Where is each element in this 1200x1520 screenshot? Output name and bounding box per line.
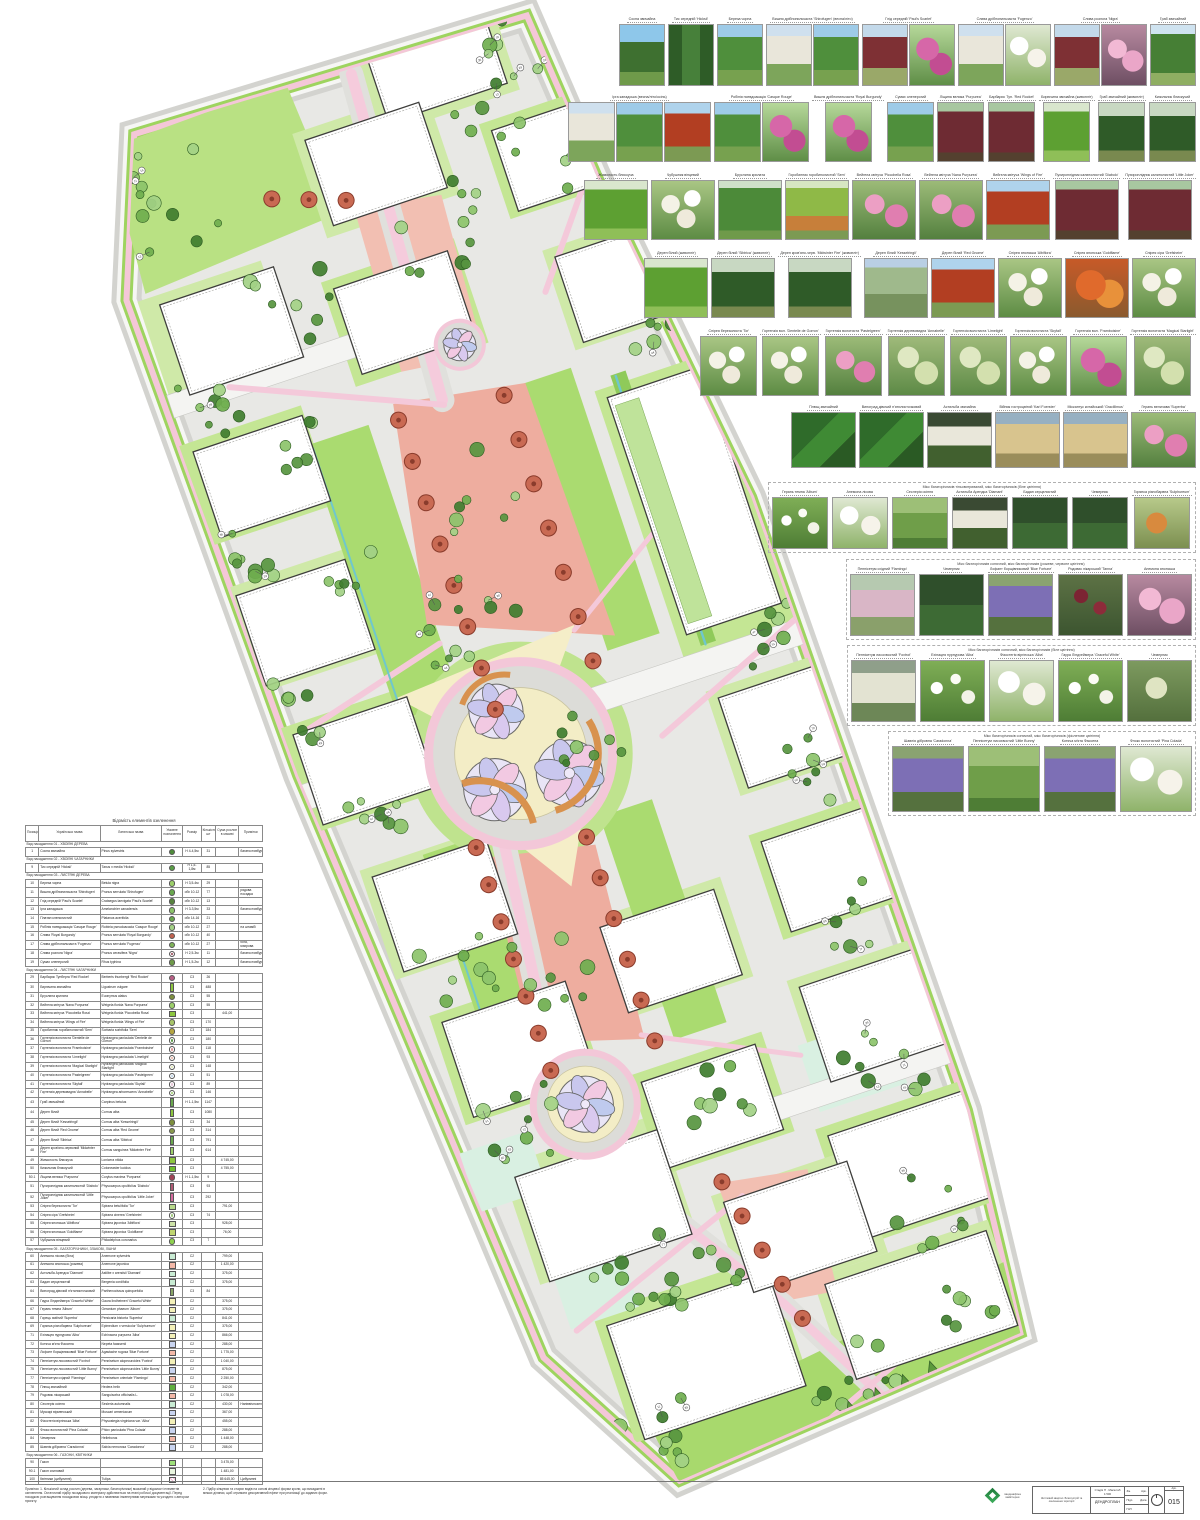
plant-photo-group: Фізостегія віргінська 'Alba' [989,654,1054,722]
plant-photo-group: Граб звичайний [1150,18,1196,86]
section-row: Вид насадження 04 - ЛИСТЯНІ ЧАГАРНИКИ [26,967,263,974]
plant-photo [1127,660,1192,722]
plant-photo-label: Дерен білий 'Sibirica' (живопліт) [715,252,772,257]
plant-photo [813,24,859,86]
plant-photo-label: Пеннісетум лисохвостий 'Little Bunny' [971,740,1037,745]
plant-photo [1134,336,1191,396]
plant-photo-group: Гортензія волотиста 'Magical Starlight' [1130,330,1196,396]
plant-symbol [169,1174,176,1181]
plant-photo-label: Фізостегія віргінська 'Alba' [998,654,1045,659]
plant-photo-group: Герань темна 'Album' [772,491,828,549]
plant-photo-label: Вейгела квітуча 'Piccobella Rosa' [855,174,913,179]
plant-photo-label: Гортензія волотиста 'Pastelgreen' [824,330,883,335]
plant-symbol [169,1393,176,1400]
photo-legend-row: Спірея березолиста 'Tor'Гортензія вол. '… [700,330,1196,396]
plant-photo-group: Дерен кров'яно-черв. 'Midwinter Fire' (ж… [778,252,861,318]
perennial-mix-section: Мікс багаторічників сонячний, мікс багат… [888,731,1196,816]
plant-row: 68Горець зміїний 'Superba'Persicaria bis… [26,1314,263,1323]
photo-legend-row: Мікс багаторічників сонячний, мікс багат… [846,559,1196,640]
plant-row: 69Горянка різнобарвна 'Sulphureum'Epimed… [26,1323,263,1332]
plant-row: 1Сосна звичайнаPinus sylvestrisН 4-4,5м3… [26,848,263,857]
plant-row: 90Газон3 475,00 [26,1459,263,1468]
plant-symbol [169,1271,176,1278]
plant-photo-label: Слива розлога 'Nigra' [1081,18,1120,23]
plant-row: 75Пеннісетум лисохвостий 'Little Bunny'P… [26,1366,263,1375]
plant-photo-label: Анемона японська [1142,568,1177,573]
plant-photo [950,336,1007,396]
plant-photo-group: Горянка різнобарвна 'Sulphureum' [1132,491,1192,549]
plant-photo [1120,746,1192,812]
plant-row: 56Спірея японська 'Goldflame'Spiraea jap… [26,1228,263,1237]
plant-symbol [169,933,176,940]
section-row: Вид насадження 05 - БАГАТОРІЧНИКИ, ЗЛАКО… [26,1246,263,1253]
plant-photo [931,258,995,318]
plant-symbol [169,1221,176,1228]
plant-photo-label: Виноград дівочий п'ятилисточковий [860,406,923,411]
plant-photo [852,180,916,240]
plant-schedule-table: ПозиціяУкраїнська назваЛатинська назваУм… [25,825,263,1485]
plant-photo [664,102,711,162]
plant-symbol [169,1444,176,1451]
plant-photo-group: Чубушник вінцевий [651,174,715,240]
plant-photo-group: Гортензія волотиста 'Pastelgreen' [824,330,883,396]
plant-photo-label: Вейгела квітуча 'Nana Purpurea' [922,174,979,179]
plant-photo-label: Ірга канадська (весна/літо/осінь) [610,96,668,101]
plant-photo-group: Спірея японська 'Albiflora' [998,252,1062,318]
plant-photo [1010,336,1067,396]
plant-photo [958,24,1004,86]
plant-row: 30Бирючина звичайнаLigustrum vulgareC348… [26,982,263,992]
plant-row: 15Робінія псевдоакація 'Casque Rouge'Rob… [26,923,263,932]
plant-photo [762,336,819,396]
plant-row: 11Вишня дрібнопильчаста 'Shirofugen'Prun… [26,888,263,897]
plant-row: 79Родовик лікарськийSanguisorba officina… [26,1392,263,1401]
plant-photo-label: Війник гостроцвітий 'Karl Foerster' [997,406,1057,411]
plant-row: 84ЧемерникHelleborusC21 448,00 [26,1435,263,1444]
plant-symbol [169,1262,176,1269]
plant-symbol [169,1333,176,1340]
plant-photo [968,746,1040,812]
plant-schedule-title: Відомість елементів озеленення [25,818,263,823]
plant-row: 14Платан кленолистийPlatanus acerifoliaо… [26,915,263,924]
plant-photo-group: Гаура Ліндхеймера 'Graceful White' [1058,654,1123,722]
plant-symbol [169,1238,176,1245]
plant-photo-label: Вишня дрібнопильчаста 'Shirofugen' (весн… [770,18,854,23]
plant-photo-group: Пухироплідник калинолистий 'Diabolo' [1053,174,1120,240]
plant-photo [986,180,1050,240]
plant-photo [1098,102,1145,162]
plant-row: 77Пеннісетум східний 'Flamingo'Pennisetu… [26,1375,263,1384]
drawing-notes: Примітки: 1. Кількісний склад рослин (де… [25,1487,355,1503]
plant-photo-group: Гортензія деревовидна 'Annabelle' [886,330,947,396]
section-row: Вид насадження 02 - ХВОЙНІ ЧАГАРНИКИ [26,856,263,863]
plant-row: 74Пеннісетум лисохвостий 'Foxtrot'Pennis… [26,1357,263,1366]
plant-symbol [169,1229,176,1236]
plant-row: 10Береза чорнаBetula nigraН 3,5-4м29 [26,879,263,888]
plant-symbol [169,1350,176,1357]
plant-photo [1063,412,1128,468]
plant-photo [788,258,852,318]
plant-photo [1043,102,1090,162]
plant-photo [851,660,916,722]
photo-legend-row: Ірга канадська (весна/літо/осінь)Робінія… [568,96,1196,162]
perennial-mix-section: Мікс багаторічників сонячний, мікс багат… [847,645,1196,726]
plant-photo-group: Слива дрібнопильчаста 'Fugenzo' [958,18,1051,86]
plant-photo-group: Дерен білий 'Kesselringii' [864,252,928,318]
plant-symbol [169,924,176,931]
plant-photo-group: Глід середній 'Paul's Scarlet' [862,18,955,86]
plant-photo-group: Вейгела квітуча 'Nana Purpurea' [919,174,983,240]
plant-symbol [169,1019,176,1026]
plant-photo [1058,660,1123,722]
plant-photo-group: Плющ звичайний [791,406,856,468]
photo-legend-row: Дерен білий (живопліт)Дерен білий 'Sibir… [644,252,1196,318]
plant-photo [832,497,888,549]
plant-photo-label: Граб звичайний (живопліт) [1098,96,1146,101]
plant-symbol [169,1046,176,1053]
plant-photo [988,102,1035,162]
plant-photo-group: Вишня дрібнопильчаста 'Shirofugen' (весн… [766,18,859,86]
plant-photo-label: Горянка різнобарвна 'Sulphureum' [1132,491,1192,496]
plant-symbol [169,1081,176,1088]
plant-row: 32Вейгела квітуча 'Nana Purpurea'Weigela… [26,1001,263,1010]
plant-photo-label: Пеннісетум східний 'Flamingo' [856,568,910,573]
plant-photo [1128,180,1192,240]
plant-photo [892,497,948,549]
plant-row: 16Слива 'Royal Burgundy'Prunus serrulata… [26,932,263,941]
plant-photo-label: Спірея японська 'Goldflame' [1072,252,1122,257]
plant-photo [919,180,983,240]
plant-photo-label: Гортензія волотиста 'Magical Starlight' [1130,330,1196,335]
plant-symbol [169,942,176,949]
plant-photo [762,102,809,162]
plant-photo-group: Сеслерія осіння [892,491,948,549]
plant-photo [1149,102,1196,162]
plant-photo-group: Спірея японська 'Goldflame' [1065,252,1129,318]
plant-photo-group: Тис середній 'Hicksii' [668,18,714,86]
plant-symbol [169,1204,176,1211]
plant-photo-group: Герань величава 'Superba' [1131,406,1196,468]
plant-photo [717,24,763,86]
plant-row: 43Граб звичайнийCarpinus betulusН 1-1,5м… [26,1097,263,1107]
plant-row: 81Мускарі вірменськийMuscari armeniacumC… [26,1409,263,1418]
plant-symbol [169,1028,176,1035]
mix-section-title: Мікс багаторічників сонячний, мікс багат… [957,562,1084,566]
plant-photo-label: Бруслина крилата [733,174,767,179]
plant-symbol [169,1367,176,1374]
plant-photo-group: Барбарис Тун. 'Red Rocket' [987,96,1036,162]
plant-row: 71Ехінацея пурпурова 'Alba'Echinacea pur… [26,1332,263,1341]
plant-photo [989,660,1054,722]
plant-photo [1132,258,1196,318]
plant-row: 9Тис середній 'Hicksii'Taxus x media 'Hi… [26,863,263,872]
note-2: 2. Підбір кінцевих та старих видів на ос… [203,1487,333,1503]
plant-photo-group: Жимолость блискуча [584,174,648,240]
plant-symbol [169,1376,176,1383]
plant-photo-group: Виноград дівочий п'ятилисточковий [859,406,924,468]
plant-photo [1005,24,1051,86]
plant-photo-label: Ехінацея пурпурова 'Alba' [929,654,976,659]
plant-symbol [169,1324,176,1331]
plant-row: 50Кизильник блискучийCotoneaster lucidus… [26,1165,263,1174]
plant-symbol [169,907,176,914]
plant-symbol [169,1298,176,1305]
plant-symbol [170,1193,175,1201]
plant-photo-label: Робінія псевдоакація 'Casque Rouge' [729,96,794,101]
plant-row: 47Дерен білий 'Sibirica'Cornus alba 'Sib… [26,1135,263,1145]
plant-photo [850,574,915,636]
plant-photo [785,180,849,240]
plant-symbol [169,959,176,966]
plant-symbol [169,1427,176,1434]
plant-photo [1072,497,1128,549]
plant-schedule: Відомість елементів озеленення ПозиціяУк… [25,818,263,1485]
photo-legend-row: Жимолость блискучаЧубушник вінцевийБрусл… [584,174,1196,240]
plant-photo-group: Вейгела квітуча 'Wings of Fire' [986,174,1050,240]
plant-photo [1134,497,1190,549]
plant-photo [1065,258,1129,318]
plant-photo [1058,574,1123,636]
plant-photo [1131,412,1196,468]
plant-photo-label: Чубушник вінцевий [665,174,701,179]
section-row: Вид насадження 01 - ХВОЙНІ ДЕРЕВА [26,841,263,848]
plant-photo [668,24,714,86]
plant-symbol [169,1307,176,1314]
plant-row: 51Пухироплідник калинолистий 'Diabolo'Ph… [26,1182,263,1192]
plant-photo-label: Вишня дрібнопильчаста 'Royal Burgundy' [812,96,884,101]
plant-symbol [169,889,176,896]
titleblock-meta: Зм.Арк. Підп.Дата ГАП [1125,1487,1149,1513]
plant-row: 29Барбарис Тунберга 'Red Rocket'Berberis… [26,974,263,983]
mix-section-title: Мікс багаторічників сонячний, мікс багат… [984,734,1101,738]
plant-photo-group: Вишня дрібнопильчаста 'Royal Burgundy' [812,96,884,162]
plant-photo [718,180,782,240]
photo-legend-row: Плющ звичайнийВиноград дівочий п'ятилист… [791,406,1196,468]
plant-row: 48Дерен кров'яно-червоний 'Midwinter Fir… [26,1146,263,1156]
plant-photo [1101,24,1147,86]
plant-photo [1012,497,1068,549]
plant-photo [619,24,665,86]
plant-photo-group: Робінія псевдоакація 'Casque Rouge' [714,96,809,162]
plant-photo-label: Гаура Ліндхеймера 'Graceful White' [1059,654,1121,659]
perennial-mix-section: Мікс багаторічників тіньовитривалий, мік… [768,482,1196,553]
plant-symbol [169,1468,176,1475]
plant-row: 31Бруслина крилатаEuonymus alatusC355 [26,993,263,1002]
plant-photo [909,24,955,86]
plant-photo-label: Гортензія волотиста 'Skyfall' [1013,330,1063,335]
plant-photo-group: Спірея сіра 'Grefsheim' [1132,252,1196,318]
plant-photo-label: Дерен білий (живопліт) [655,252,698,257]
plant-photo [1070,336,1127,396]
plant-photo-group: Родовик лікарський 'Tanna' [1058,568,1123,636]
plant-row: 41Гортензія волотиста 'Skyfall'Hydrangea… [26,1080,263,1089]
plant-symbol [169,1315,176,1322]
plant-photo-group: Чемерник [919,568,984,636]
plant-photo-label: Горобинник горобинолистий 'Sem' [786,174,847,179]
plant-row: 60Анемона лісова (біла)Anemone sylvestri… [26,1252,263,1261]
plant-row: 49Жимолость блискучаLonicera nitidaC34 7… [26,1156,263,1165]
plant-photo-label: Спірея японська 'Albiflora' [1007,252,1054,257]
photo-legend-row: Мікс багаторічників сонячний, мікс багат… [888,731,1196,816]
plant-photo [1044,746,1116,812]
plant-symbol [169,1064,176,1071]
plant-photo-label: Шавлія дібровна 'Caradonna' [902,740,954,745]
section-row: Вид насадження 06 - ГАЗОНИ, КВІТНИКИ [26,1452,263,1459]
plant-row: 57Чубушник вінцевийPhiladelphus coronari… [26,1237,263,1246]
plant-symbol [170,1147,175,1155]
plant-photo-label: Анемона лісова [844,491,874,496]
plant-photo-group: Дерен білий 'Sibirica' (живопліт) [711,252,775,318]
mix-section-title: Мікс багаторічників тіньовитривалий, мік… [923,485,1042,489]
plant-photo [864,258,928,318]
plant-row: 44Дерен білийCornus albaC31080 [26,1108,263,1118]
plant-symbol [169,1418,176,1425]
plant-row: 13Ірга канадськаAmelanchier canadensisН … [26,906,263,915]
plant-row: 85Шавлія дібровна 'Caradonna'Salvia nemo… [26,1443,263,1452]
plant-photo [766,24,812,86]
plant-photo-group: Гортензія волотиста 'Skyfall' [1010,330,1067,396]
plant-symbol [169,1119,176,1126]
plant-photo-label: Астильба Арендса 'Diamant' [954,491,1005,496]
plant-symbol [169,865,176,872]
section-row: Вид насадження 03 - ЛИСТЯНІ ДЕРЕВА [26,873,263,880]
plant-symbol [169,1157,176,1164]
column-header: Умовне позначення [161,825,182,841]
plant-photo-group: Шавлія дібровна 'Caradonna' [892,740,964,812]
plant-symbol [170,1288,175,1296]
plant-symbol [169,994,176,1001]
plant-photo [791,412,856,468]
plant-photo-label: Дерен білий 'Kesselringii' [873,252,918,257]
plant-photo-label: Вейгела квітуча 'Wings of Fire' [991,174,1045,179]
plant-photo-label: Гортензія деревовидна 'Annabelle' [886,330,947,335]
plant-photo-label: Чемерник [1149,654,1169,659]
plant-row: 35Горобинник горобинолистий 'Sem'Sorbari… [26,1027,263,1036]
plant-symbol [169,1279,176,1286]
plant-row: 63Бадан серцелистийBergenia cordifoliaC2… [26,1278,263,1287]
plant-symbol [169,1401,176,1408]
plant-photo [616,102,663,162]
photo-legend-row: Сосна звичайнаТис середній 'Hicksii'Бере… [619,18,1196,86]
plant-photo-group: Гортензія волотиста 'Limelight' [950,330,1007,396]
plant-photo-label: Сосна звичайна [627,18,658,23]
plant-photo-group: Вейгела квітуча 'Piccobella Rosa' [852,174,916,240]
plant-photo-label: Астильба звичайна [941,406,977,411]
drawing-sheet: 1113162933363842444751536072778511131629… [0,0,1200,1520]
plant-photo-label: Міскантус китайський 'Gracillimus' [1065,406,1125,411]
plant-photo-label: Спірея березолиста 'Tor' [707,330,752,335]
plant-photo [887,102,934,162]
plant-symbol [169,1341,176,1348]
plant-symbol [169,1037,176,1044]
plant-photo-label: Ліщина велика 'Purpurea' [938,96,984,101]
plant-photo-group: Дерен білий 'Red Gnome' [931,252,995,318]
plant-photo-label: Дерен білий 'Red Gnome' [940,252,986,257]
company-name: ландшафтнамайстерня [1004,1493,1021,1500]
plant-photo [927,412,992,468]
plant-photo-label: Жимолость блискуча [596,174,635,179]
plant-row: 54Спірея сіра 'Grefsheim'Spiraea cinerea… [26,1211,263,1220]
plant-symbol [169,951,176,958]
plant-row: 12Глід середній 'Paul's Scarlet'Crataegu… [26,897,263,906]
plant-row: 19Сумах оленерогийRhus typhinaН 1,5-2м12… [26,958,263,967]
plant-row: 66Гаура Ліндхеймера 'Graceful White'Gaur… [26,1297,263,1306]
plant-photo-label: Чемерник [941,568,961,573]
column-header: Латинська назва [100,825,161,841]
plant-photo [859,412,924,468]
plant-photo-label: Плющ звичайний [807,406,840,411]
plant-photo-group: Котяча м'ята Фассена [1044,740,1116,812]
plant-photo-group: Сосна звичайна [619,18,665,86]
plant-symbol [169,898,176,905]
plant-photo-group: Чемерник [1072,491,1128,549]
plant-photo-label: Родовик лікарський 'Tanna' [1066,568,1115,573]
plant-symbol [169,1253,176,1260]
plant-photo-label: Гортензія вол. 'Dentelle de Gorron' [760,330,820,335]
plant-photo-label: Герань темна 'Album' [780,491,819,496]
plant-photo [862,24,908,86]
plant-row: 50.1Ліщина велика 'Purpurea'Corylus maxi… [26,1173,263,1182]
plant-symbol [169,1166,176,1173]
stamp-circle-icon [1149,1487,1165,1513]
plant-symbol [169,1384,176,1391]
plant-photo-group: Лофант борщівниковий 'Blue Fortune' [988,568,1054,636]
plant-row: 72Котяча м'ята ФассенаNepeta faasseniiC2… [26,1340,263,1349]
plant-photo [584,180,648,240]
plant-photo-label: Слива дрібнопильчаста 'Fugenzo' [975,18,1035,23]
plant-row: 90.1Газон схиловий1 481,00 [26,1467,263,1476]
plant-symbol [170,983,175,991]
plant-photo-group: Горобинник горобинолистий 'Sem' [785,174,849,240]
drawing-title: ДЕНДРОПЛАН [1091,1498,1124,1504]
plant-photo-group: Бирючина звичайна (живопліт) [1039,96,1094,162]
plant-row: 17Слива дрібнопильчаста 'Fugenzo'Prunus … [26,940,263,949]
plant-photo [568,102,615,162]
plant-row: 55Спірея японська 'Albiflora'Spiraea jap… [26,1220,263,1229]
plant-symbol [170,1098,175,1106]
plant-symbol [169,880,176,887]
plant-photo-label: Герань величава 'Superba' [1139,406,1187,411]
plant-photo-label: Пухироплідник калинолистий 'Little Joker… [1123,174,1196,179]
plant-photo-group: Кизильник блискучий [1149,96,1196,162]
plant-photo-group: Граб звичайний (живопліт) [1098,96,1146,162]
plant-photo [937,102,984,162]
plant-photo [888,336,945,396]
plant-photo-label: Пеннісетум лисохвостий 'Foxtrot' [854,654,913,659]
plant-photo [920,660,985,722]
plant-photo [1055,180,1119,240]
plant-symbol [170,1183,175,1191]
column-header: Українська назва [39,825,100,841]
plant-symbol [169,975,176,982]
plant-row: 62Астильба Арендса 'Diamant'Astilbe x ar… [26,1270,263,1279]
plant-photo-group: Бруслина крилата [718,174,782,240]
plant-row: 61Анемона японська (рожева)Anemone japon… [26,1261,263,1270]
plant-photo-label: Котяча м'ята Фассена [1060,740,1101,745]
plant-row: 82Фізостегія віргінська 'Alba'Physostegi… [26,1417,263,1426]
plant-photo-group: Слива розлога 'Nigra' [1054,18,1147,86]
plant-row: 46Дерен білий 'Red Gnome'Cornus alba 'Re… [26,1127,263,1136]
plant-photo-label: Глід середній 'Paul's Scarlet' [883,18,934,23]
plant-photo [711,258,775,318]
plant-photo-group: Війник гостроцвітий 'Karl Foerster' [995,406,1060,468]
plant-photo-group: Анемона лісова [832,491,888,549]
plant-symbol [169,1358,176,1365]
plant-symbol [169,1212,176,1219]
plant-photo-group: Пеннісетум східний 'Flamingo' [850,568,915,636]
plant-photo [952,497,1008,549]
perennial-mix-section: Мікс багаторічників сонячний, мікс багат… [846,559,1196,640]
